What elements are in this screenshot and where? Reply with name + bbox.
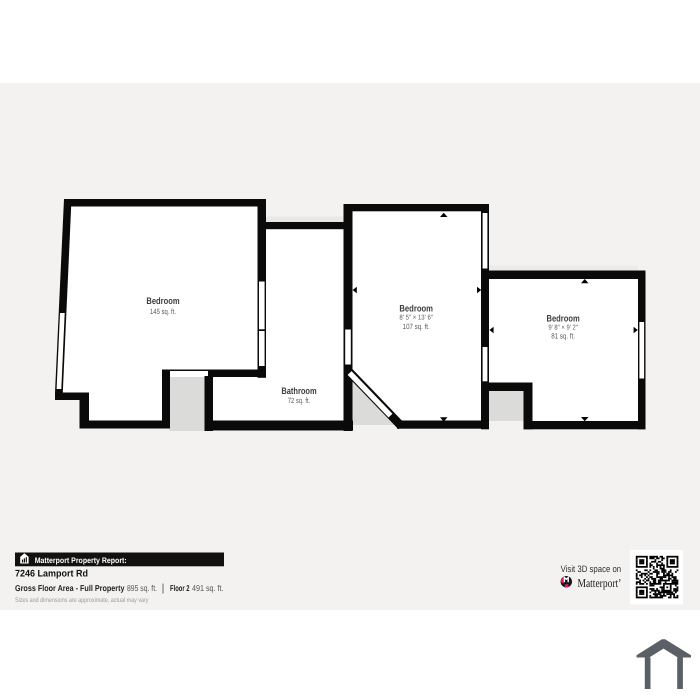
svg-text:491 sq. ft.: 491 sq. ft. [192,583,224,593]
svg-text:Visit 3D space on: Visit 3D space on [561,564,622,574]
svg-text:Bedroom: Bedroom [146,295,179,306]
svg-text:81 sq. ft.: 81 sq. ft. [551,332,575,341]
svg-text:Bedroom: Bedroom [547,312,580,323]
svg-text:Bathroom: Bathroom [281,385,316,396]
svg-text:72 sq. ft.: 72 sq. ft. [288,396,311,405]
svg-text:Matterport’: Matterport’ [578,576,622,590]
svg-text:Sizes and dimensions are appro: Sizes and dimensions are approximate, ac… [15,597,149,604]
svg-text:Floor 2: Floor 2 [170,583,190,593]
svg-text:107 sq. ft.: 107 sq. ft. [403,322,430,331]
svg-text:Bedroom: Bedroom [399,302,433,313]
svg-text:895 sq. ft.: 895 sq. ft. [127,583,157,593]
svg-text:145 sq. ft.: 145 sq. ft. [150,307,176,316]
svg-text:7246 Lamport Rd: 7246 Lamport Rd [15,569,88,580]
svg-text:Gross Floor Area - Full Proper: Gross Floor Area - Full Property [15,583,125,593]
svg-text:8' 5" × 13' 6": 8' 5" × 13' 6" [399,315,433,322]
svg-text:Matterport Property Report:: Matterport Property Report: [35,556,127,565]
